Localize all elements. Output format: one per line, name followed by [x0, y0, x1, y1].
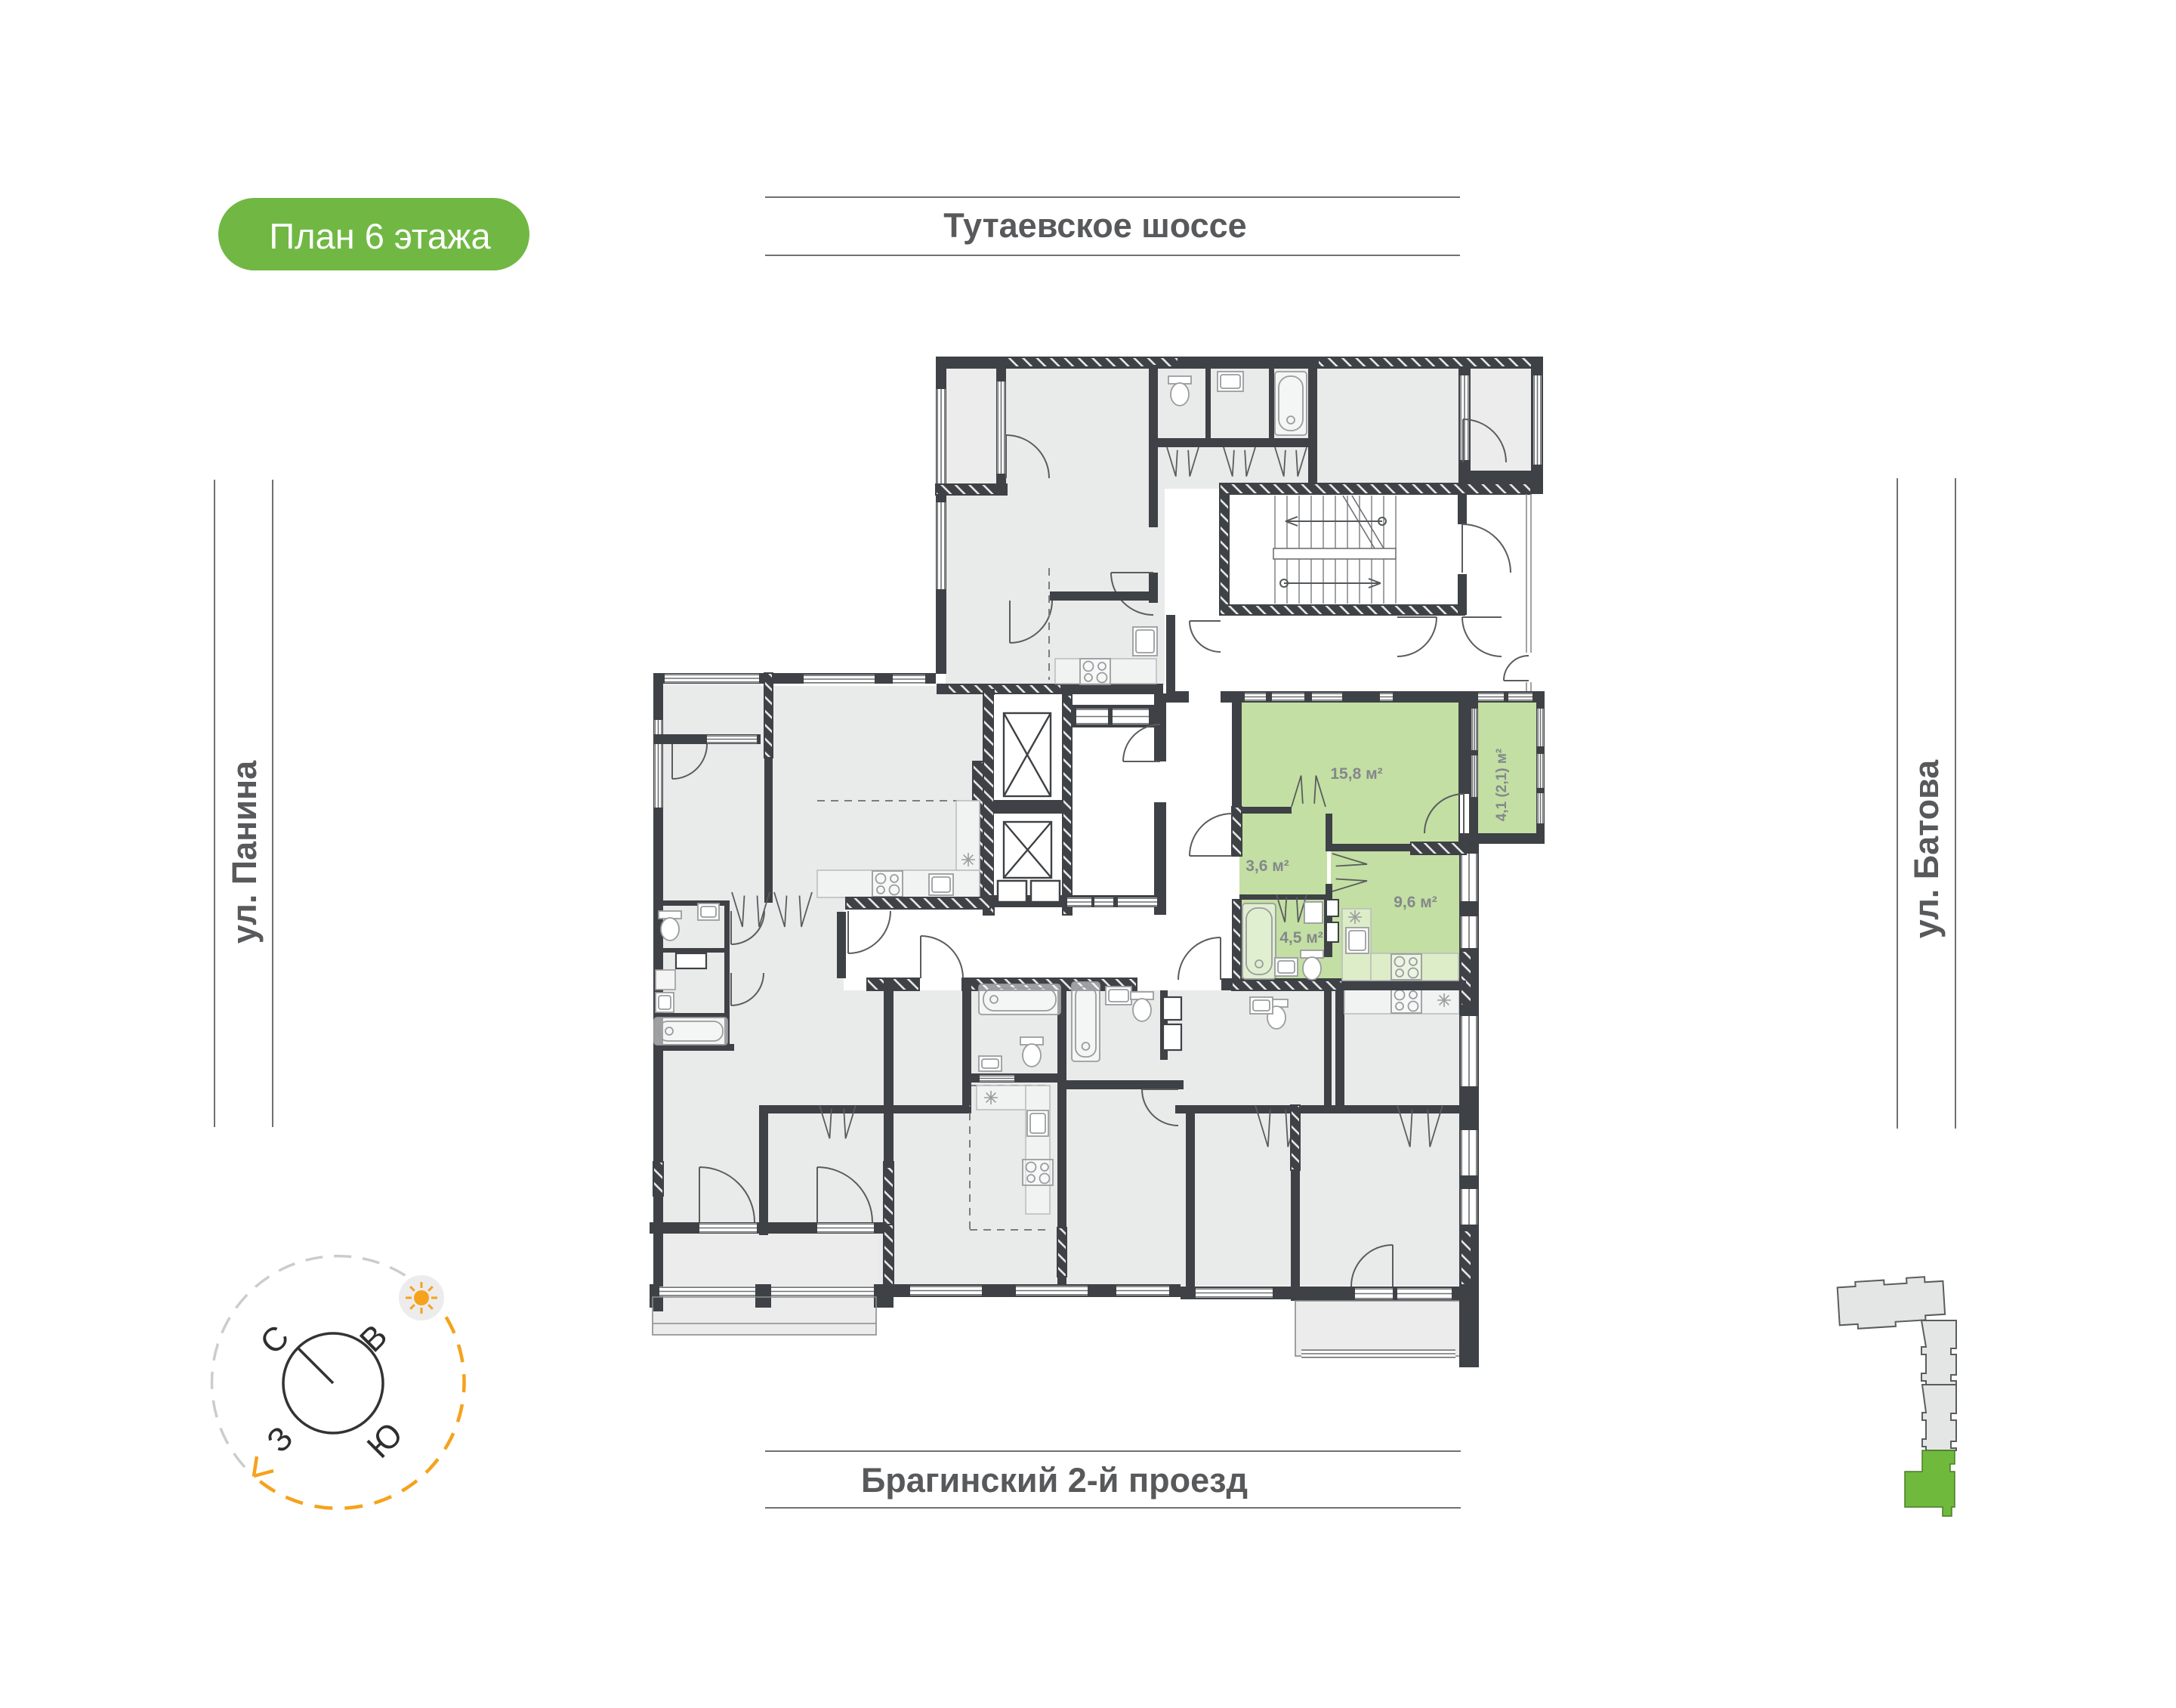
svg-text:ул. Батова: ул. Батова: [1907, 759, 1946, 938]
svg-text:3,6 м²: 3,6 м²: [1245, 857, 1289, 875]
svg-text:15,8 м²: 15,8 м²: [1330, 765, 1382, 783]
svg-text:9,6 м²: 9,6 м²: [1394, 894, 1437, 911]
svg-text:4,1 (2,1) м²: 4,1 (2,1) м²: [1494, 749, 1510, 821]
svg-text:Тутаевское шоссе: Тутаевское шоссе: [943, 206, 1246, 245]
svg-text:ул. Панина: ул. Панина: [225, 760, 264, 944]
svg-text:План 6 этажа: План 6 этажа: [269, 216, 491, 256]
svg-text:Брагинский 2-й проезд: Брагинский 2-й проезд: [861, 1461, 1248, 1500]
svg-text:4,5 м²: 4,5 м²: [1279, 929, 1323, 947]
